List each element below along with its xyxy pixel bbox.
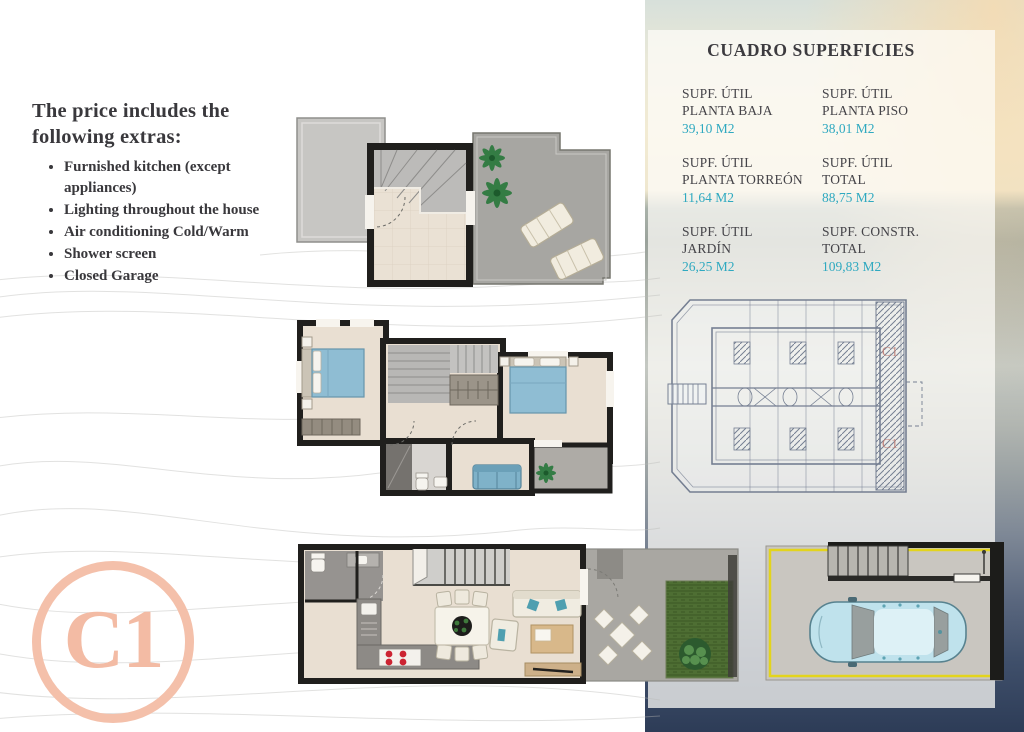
bathroom <box>305 551 383 601</box>
brochure-page: The price includes the following extras:… <box>0 0 1024 732</box>
bed-icon <box>500 357 578 413</box>
door-opening <box>580 569 588 605</box>
floorplan-first-floor <box>288 313 620 511</box>
surfaces-grid: SUPF. ÚTIL PLANTA BAJA 39,10 M2 SUPF. ÚT… <box>682 85 988 275</box>
surface-cell: SUPF. ÚTIL PLANTA BAJA 39,10 M2 <box>682 85 822 137</box>
surface-cell: SUPF. CONSTR. TOTAL 109,83 M2 <box>822 223 982 275</box>
floorplan-torreon <box>285 103 615 288</box>
surface-cell: SUPF. ÚTIL PLANTA PISO 38,01 M2 <box>822 85 982 137</box>
c1-unit-badge-label: C1 <box>64 598 163 682</box>
bench-icon <box>302 419 360 435</box>
surface-value: 11,64 M2 <box>682 189 822 206</box>
stairs-icon <box>413 549 510 585</box>
floorplan-ground-floor <box>295 541 740 686</box>
surfaces-title: CUADRO SUPERFICIES <box>648 40 974 61</box>
intro-text: The price includes the following extras:… <box>32 98 287 288</box>
tv-bench-icon <box>525 663 581 676</box>
surface-value: 26,25 M2 <box>682 258 822 275</box>
site-plan: C1 C1 <box>650 290 926 502</box>
dining-table-icon <box>435 590 489 661</box>
stairs-icon <box>668 384 706 404</box>
bush-plant-icon <box>679 638 711 670</box>
surfaces-table: CUADRO SUPERFICIES SUPF. ÚTIL PLANTA BAJ… <box>648 40 988 275</box>
sofa-icon <box>473 465 521 489</box>
extras-item: Shower screen <box>64 244 299 265</box>
surface-value: 109,83 M2 <box>822 258 982 275</box>
highlighted-unit-band <box>876 302 922 490</box>
surface-value: 88,75 M2 <box>822 189 982 206</box>
door-opening <box>466 191 475 225</box>
surface-cell: SUPF. ÚTIL JARDÍN 26,25 M2 <box>682 223 822 275</box>
extras-list: Furnished kitchen (except appliances) Li… <box>46 157 299 287</box>
plant-icon <box>536 463 556 483</box>
intro-heading: The price includes the following extras: <box>32 98 287 150</box>
terrace-garden <box>583 549 738 681</box>
surface-cell: SUPF. ÚTIL PLANTA TORREÓN 11,64 M2 <box>682 154 822 206</box>
door-opening <box>365 195 374 229</box>
tower-room <box>365 143 475 287</box>
extras-item: Closed Garage <box>64 266 299 287</box>
surface-cell: SUPF. ÚTIL TOTAL 88,75 M2 <box>822 154 982 206</box>
car-icon <box>810 597 966 667</box>
extras-item: Air conditioning Cold/Warm <box>64 222 299 243</box>
garage-plan <box>762 538 1014 688</box>
extras-item: Furnished kitchen (except appliances) <box>64 157 299 199</box>
coffee-table-icon <box>531 625 573 653</box>
surface-value: 39,10 M2 <box>682 120 822 137</box>
site-plan-unit-label: C1 <box>882 345 898 360</box>
extras-item: Lighting throughout the house <box>64 200 299 221</box>
c1-unit-badge: C1 <box>32 561 194 723</box>
site-plan-unit-label: C1 <box>882 437 898 452</box>
surface-value: 38,01 M2 <box>822 120 982 137</box>
wardrobe-icon <box>450 375 498 405</box>
